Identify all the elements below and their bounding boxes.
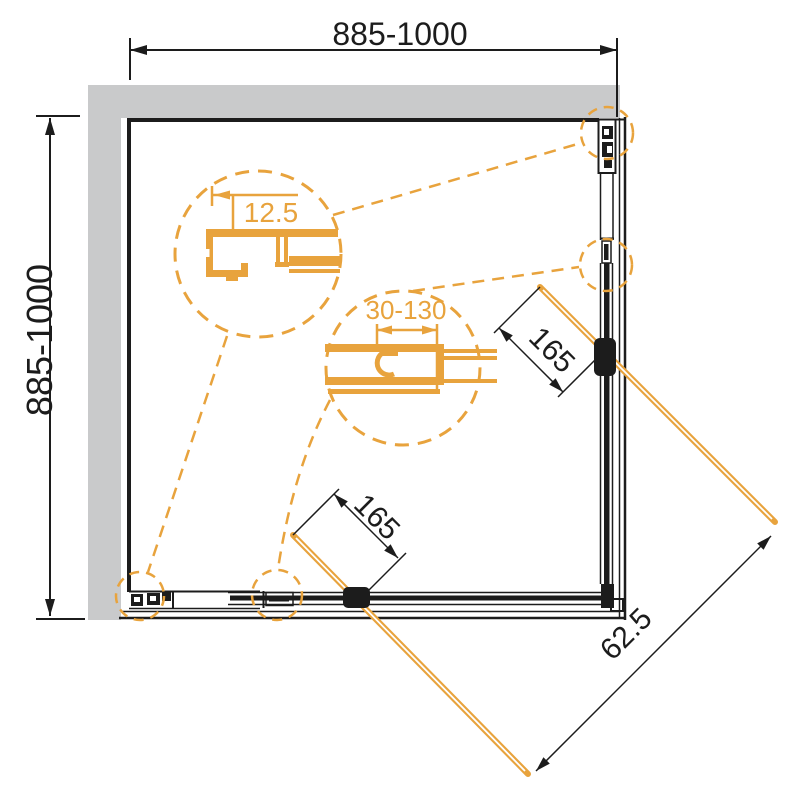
overlap-bar [443,379,497,383]
rail-bottom-bar [357,377,443,385]
open-doors [293,287,775,774]
leader-wallprofile-topright [333,143,581,215]
connector-right-bar [604,244,609,260]
rail-end-cap [436,344,444,385]
dimension-door-right-label: 165 [522,321,581,380]
profile-right-bar [289,256,340,266]
connector-bottom-bar [269,596,289,602]
detail-overlap-label: 30-130 [366,295,447,325]
rail-stub [325,377,361,385]
dimension-door-bottom: 165 [293,488,406,599]
arrow-up-icon [45,118,55,135]
glass-rail-right-thick [604,263,610,585]
detail-overlap: 30-130 [325,291,497,445]
plan-view-canvas: 885-1000 885-1000 [0,0,800,796]
glass-edge-strip [276,237,280,264]
fixed-edge-top [127,118,599,122]
dimension-door-bottom-label: 165 [347,488,406,547]
rail-stub [325,344,361,352]
wall-left [88,85,121,620]
arrow-left-icon [377,326,392,335]
arrow-down-icon [45,599,55,616]
dimension-left-depth: 885-1000 [19,116,85,619]
dimension-left-label: 885-1000 [19,264,60,416]
dimension-top-label: 885-1000 [332,16,467,52]
handle-bottom-door [343,587,370,608]
wall-top [88,85,620,118]
arrow-right-icon [422,326,437,335]
profile-top-bar [206,229,338,237]
arrow-left-icon [130,45,147,55]
rail-top-bar [357,344,443,352]
profile-block [604,160,612,168]
detail-wall-profile-label: 12.5 [244,197,299,228]
corner-block-bottom-right [601,584,614,608]
profile-right-bar-thin [289,269,340,273]
overlap-bar [443,349,497,353]
arrow-right-icon [600,45,617,55]
dimension-door-right: 165 [494,287,604,397]
marker-circle-bottom-middle [252,570,302,620]
arrow-left-icon [214,191,230,200]
shower-enclosure-installation-drawing: 885-1000 885-1000 [0,0,800,796]
detail-wall-profile: 12.5 [175,171,341,337]
overlap-bottom-bar [328,389,440,394]
dimension-diagonal-gap: 62.5 [536,536,771,771]
fixed-edge-left [127,118,131,592]
leader-wallprofile-bottomleft [148,336,227,572]
leader-overlap-rightmiddle [413,267,579,291]
glass-edge-strip [284,237,288,264]
overlap-bar [443,356,497,360]
